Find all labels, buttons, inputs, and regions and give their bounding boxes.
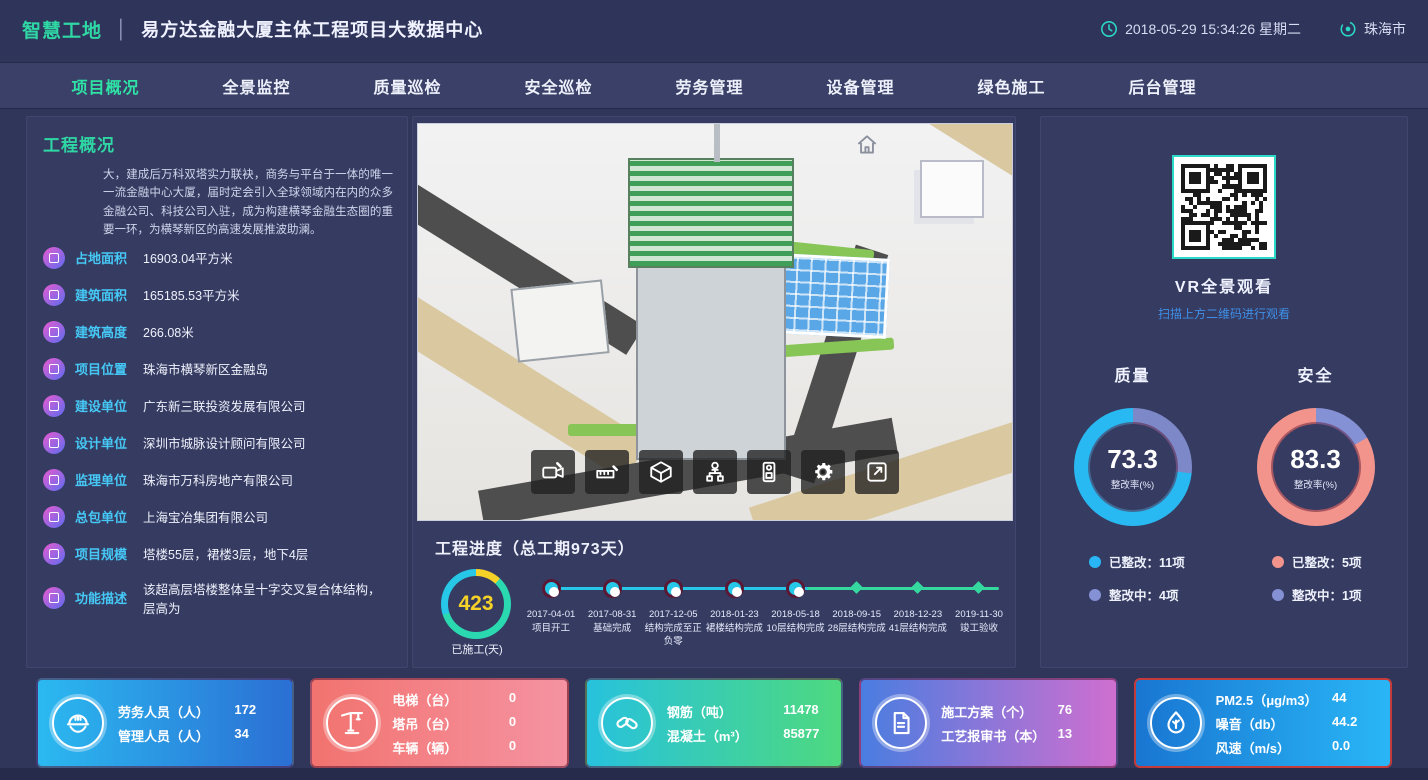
decorative-crane: [714, 123, 720, 162]
document-icon: [875, 697, 927, 749]
milestone-dot-icon: [786, 579, 805, 598]
item-bullet-icon: [43, 543, 65, 565]
overview-item-label: 监理单位: [75, 470, 143, 489]
overview-item-value: 深圳市城脉设计顾问有限公司: [143, 433, 306, 452]
header-divider: │: [116, 19, 127, 40]
overview-item: 项目位置 珠海市横琴新区金融岛: [43, 357, 391, 381]
milestone-label: 裙楼结构完成: [703, 623, 765, 636]
overview-item: 设计单位 深圳市城脉设计顾问有限公司: [43, 431, 391, 455]
decorative-main-tower: [636, 210, 786, 460]
nav-tab-label: 全景监控: [222, 80, 290, 97]
overview-item-label: 建筑面积: [75, 285, 143, 304]
kpi-label: 钢筋（吨）: [667, 702, 732, 721]
overview-item-value: 广东新三联投资发展有限公司: [143, 396, 306, 415]
legend-label: 整改中：1项: [1292, 585, 1361, 604]
safety-score: 83.3: [1290, 444, 1341, 475]
overview-item-label: 功能描述: [75, 588, 143, 607]
kpi-value: 172: [234, 702, 278, 721]
timeline-milestone: 2018-09-15 28层结构完成: [827, 547, 887, 663]
project-overview-panel: 工程概况 大，建成后万科双塔实力联袂，商务与平台于一体的唯一一流金融中心大厦，届…: [26, 116, 408, 668]
milestone-date: 2018-09-15: [832, 609, 881, 620]
milestone-dot-icon: [664, 579, 683, 598]
overview-item-value: 珠海市万科房地产有限公司: [143, 470, 293, 489]
days-done-gauge: 423: [441, 569, 511, 639]
documents-card: 施工方案（个）76 工艺报审书（本）13: [859, 678, 1117, 768]
nav-tab-label: 绿色施工: [977, 80, 1045, 97]
nav-tab[interactable]: 全景监控: [181, 74, 332, 98]
timeline-milestone: 2018-12-23 41层结构完成: [888, 547, 948, 663]
kpi-value: 0.0: [1332, 738, 1376, 757]
clock-icon: [1100, 20, 1118, 38]
bim-3d-viewport[interactable]: [417, 123, 1013, 521]
overview-item-label: 占地面积: [75, 248, 143, 267]
timeline-milestone: 2017-04-01 项目开工: [521, 547, 581, 663]
org-chart-icon[interactable]: [693, 450, 737, 494]
city-text: 珠海市: [1364, 19, 1406, 39]
rebar-links-icon: [601, 697, 653, 749]
viewport-toolbar: [531, 450, 899, 494]
device-icon[interactable]: [747, 450, 791, 494]
item-bullet-icon: [43, 469, 65, 491]
milestone-dot-icon: [973, 581, 986, 594]
legend-label: 已整改：5项: [1292, 552, 1361, 571]
legend-dot-icon: [1272, 556, 1284, 568]
timeline-milestone: 2017-08-31 基础完成: [582, 547, 642, 663]
kpi-value: 13: [1058, 726, 1102, 745]
kpi-value: 85877: [783, 726, 827, 745]
nav-tab-label: 设备管理: [826, 80, 894, 97]
qr-code: [1174, 157, 1274, 257]
timeline-milestone: 2018-05-18 10层结构完成: [766, 547, 826, 663]
overview-item: 占地面积 16903.04平方米: [43, 246, 391, 270]
environment-card: PM2.5（μg/m3）44 噪音（db）44.2 风速（m/s）0.0: [1134, 678, 1392, 768]
kpi-label: 车辆（辆）: [392, 738, 457, 757]
progress-timeline: 2017-04-01 项目开工 2017-08-31 基础完成 2017-12-…: [521, 547, 1009, 663]
vr-title: VR全景观看: [1041, 273, 1407, 297]
nav-tab[interactable]: 质量巡检: [332, 74, 483, 98]
top-header: 智慧工地 │ 易方达金融大厦主体工程项目大数据中心 2018-05-29 15:…: [0, 0, 1428, 58]
nav-tab[interactable]: 设备管理: [785, 74, 936, 98]
overview-item: 建筑高度 266.08米: [43, 320, 391, 344]
milestone-dot-icon: [911, 581, 924, 594]
datetime-text: 2018-05-29 15:34:26 星期二: [1125, 19, 1301, 39]
overview-item-label: 设计单位: [75, 433, 143, 452]
nav-tab-label: 安全巡检: [524, 80, 592, 97]
legend-item: 整改中：1项: [1272, 585, 1407, 604]
kpi-label: 风速（m/s）: [1216, 738, 1290, 757]
main-nav: 项目概况全景监控质量巡检安全巡检劳务管理设备管理绿色施工后台管理: [0, 62, 1428, 109]
milestone-label: 项目开工: [520, 623, 582, 636]
kpi-label: 混凝土（m³）: [667, 726, 748, 745]
nav-tab[interactable]: 劳务管理: [634, 74, 785, 98]
video-camera-icon[interactable]: [531, 450, 575, 494]
location-icon: [1339, 20, 1357, 38]
decorative-scaffold: [628, 158, 794, 268]
item-bullet-icon: [43, 358, 65, 380]
overview-item-label: 建筑高度: [75, 322, 143, 341]
item-bullet-icon: [43, 284, 65, 306]
kpi-label: 劳务人员（人）: [118, 702, 209, 721]
kpi-value: 11478: [783, 702, 827, 721]
milestone-date: 2017-12-05: [649, 609, 698, 620]
view-cube[interactable]: [920, 160, 984, 218]
kpi-value: 0: [509, 738, 553, 757]
nav-tab[interactable]: 安全巡检: [483, 74, 634, 98]
legend-item: 已整改：11项: [1089, 552, 1224, 571]
cube-icon[interactable]: [639, 450, 683, 494]
kpi-label: 工艺报审书（本）: [941, 726, 1045, 745]
overview-item: 功能描述 该超高层塔楼整体呈十字交叉复合体结构，层高为: [43, 579, 391, 617]
milestone-dot-icon: [542, 579, 561, 598]
item-bullet-icon: [43, 247, 65, 269]
tower-crane-icon: [326, 697, 378, 749]
equipment-card: 电梯（台）0 塔吊（台）0 车辆（辆）0: [310, 678, 568, 768]
quality-score: 73.3: [1107, 444, 1158, 475]
milestone-label: 41层结构完成: [887, 623, 949, 636]
item-bullet-icon: [43, 321, 65, 343]
bottom-strip: [0, 768, 1428, 780]
item-bullet-icon: [43, 432, 65, 454]
nav-tab[interactable]: 后台管理: [1087, 74, 1238, 98]
nav-tab[interactable]: 项目概况: [30, 74, 181, 98]
milestone-date: 2019-11-30: [955, 609, 1003, 620]
overview-item-label: 总包单位: [75, 507, 143, 526]
center-panel: 工程进度（总工期973天） 423 已施工(天) 2017-04-01 项目开工…: [412, 116, 1016, 668]
workers-card: 劳务人员（人）172 管理人员（人）34: [36, 678, 294, 768]
milestone-dot-icon: [725, 579, 744, 598]
milestone-label: 基础完成: [581, 623, 643, 636]
milestone-dot-icon: [850, 581, 863, 594]
kpi-value: 44: [1332, 690, 1376, 709]
page-title: 易方达金融大厦主体工程项目大数据中心: [141, 16, 483, 42]
kpi-label: 塔吊（台）: [392, 714, 457, 733]
overview-item: 建筑面积 165185.53平方米: [43, 283, 391, 307]
overview-item: 监理单位 珠海市万科房地产有限公司: [43, 468, 391, 492]
app-logo: 智慧工地: [22, 16, 102, 43]
overview-item-value: 珠海市横琴新区金融岛: [143, 359, 268, 378]
overview-description: 大，建成后万科双塔实力联袂，商务与平台于一体的唯一一流金融中心大厦，届时定会引入…: [103, 166, 393, 240]
overview-item-value: 上海宝冶集团有限公司: [143, 507, 268, 526]
overview-item-label: 项目位置: [75, 359, 143, 378]
decorative-podium: [510, 279, 609, 362]
milestone-dot-icon: [603, 579, 622, 598]
quality-gauge-title: 质量: [1041, 362, 1224, 386]
legend-dot-icon: [1089, 556, 1101, 568]
milestone-date: 2018-12-23: [894, 609, 943, 620]
right-panel: VR全景观看 扫描上方二维码进行观看 质量 安全 73.3 整改率(%) 83.…: [1040, 116, 1408, 668]
milestone-label: 10层结构完成: [765, 623, 827, 636]
nav-tab[interactable]: 绿色施工: [936, 74, 1087, 98]
home-view-button[interactable]: [854, 132, 880, 158]
milestone-date: 2017-04-01: [527, 609, 576, 620]
nav-tab-label: 劳务管理: [675, 80, 743, 97]
fullscreen-icon[interactable]: [855, 450, 899, 494]
item-bullet-icon: [43, 587, 65, 609]
overview-item-value: 塔楼55层，裙楼3层，地下4层: [143, 544, 308, 563]
kpi-label: PM2.5（μg/m3）: [1216, 690, 1318, 709]
milestone-label: 竣工验收: [948, 623, 1010, 636]
timeline-milestone: 2018-01-23 裙楼结构完成: [704, 547, 764, 663]
datetime-group: 2018-05-29 15:34:26 星期二: [1100, 19, 1301, 39]
overview-item-value: 16903.04平方米: [143, 248, 233, 267]
nav-tab-label: 后台管理: [1128, 80, 1196, 97]
overview-item: 总包单位 上海宝冶集团有限公司: [43, 505, 391, 529]
item-bullet-icon: [43, 506, 65, 528]
overview-item-value: 165185.53平方米: [143, 285, 240, 304]
nav-tab-label: 质量巡检: [373, 80, 441, 97]
kpi-value: 76: [1058, 702, 1102, 721]
materials-card: 钢筋（吨）11478 混凝土（m³）85877: [585, 678, 843, 768]
days-done-value: 423: [458, 592, 493, 616]
overview-list: 占地面积 16903.04平方米 建筑面积 165185.53平方米 建筑高度 …: [43, 246, 391, 617]
kpi-value: 0: [509, 690, 553, 709]
item-bullet-icon: [43, 395, 65, 417]
kpi-label: 管理人员（人）: [118, 726, 209, 745]
measure-icon[interactable]: [585, 450, 629, 494]
worker-helmet-icon: [52, 697, 104, 749]
timeline-milestone: 2017-12-05 结构完成至正负零: [643, 547, 703, 663]
safety-score-unit: 整改率(%): [1294, 477, 1337, 491]
legend-item: 整改中：4项: [1089, 585, 1224, 604]
legend-label: 已整改：11项: [1109, 552, 1185, 571]
milestone-date: 2018-01-23: [710, 609, 759, 620]
legend-label: 整改中：4项: [1109, 585, 1178, 604]
overview-item-label: 建设单位: [75, 396, 143, 415]
kpi-value: 34: [234, 726, 278, 745]
location-group: 珠海市: [1339, 19, 1406, 39]
quality-score-unit: 整改率(%): [1111, 477, 1154, 491]
kpi-label: 施工方案（个）: [941, 702, 1032, 721]
kpi-value: 0: [509, 714, 553, 733]
quality-donut-chart: 73.3 整改率(%): [1041, 408, 1224, 526]
gear-icon[interactable]: [801, 450, 845, 494]
overview-item: 项目规模 塔楼55层，裙楼3层，地下4层: [43, 542, 391, 566]
vr-subtitle: 扫描上方二维码进行观看: [1041, 305, 1407, 322]
milestone-date: 2017-08-31: [588, 609, 637, 620]
overview-item-value: 该超高层塔楼整体呈十字交叉复合体结构，层高为: [143, 579, 391, 617]
safety-gauge-title: 安全: [1224, 362, 1407, 386]
kpi-cards-row: 劳务人员（人）172 管理人员（人）34 电梯（台）0 塔吊（台）0 车辆（辆）…: [0, 678, 1428, 768]
overview-item-value: 266.08米: [143, 322, 194, 341]
overview-item-label: 项目规模: [75, 544, 143, 563]
nav-tab-label: 项目概况: [71, 80, 139, 97]
legend-item: 已整改：5项: [1272, 552, 1407, 571]
milestone-label: 结构完成至正负零: [642, 623, 704, 649]
kpi-value: 44.2: [1332, 714, 1376, 733]
legend-dot-icon: [1272, 589, 1284, 601]
legend-dot-icon: [1089, 589, 1101, 601]
kpi-label: 噪音（db）: [1216, 714, 1284, 733]
overview-item: 建设单位 广东新三联投资发展有限公司: [43, 394, 391, 418]
overview-title: 工程概况: [43, 131, 391, 156]
milestone-date: 2018-05-18: [771, 609, 820, 620]
eco-drop-icon: [1150, 697, 1202, 749]
safety-donut-chart: 83.3 整改率(%): [1224, 408, 1407, 526]
days-done-label: 已施工(天): [435, 641, 519, 657]
milestone-label: 28层结构完成: [826, 623, 888, 636]
timeline-milestone: 2019-11-30 竣工验收: [949, 547, 1009, 663]
kpi-label: 电梯（台）: [392, 690, 457, 709]
